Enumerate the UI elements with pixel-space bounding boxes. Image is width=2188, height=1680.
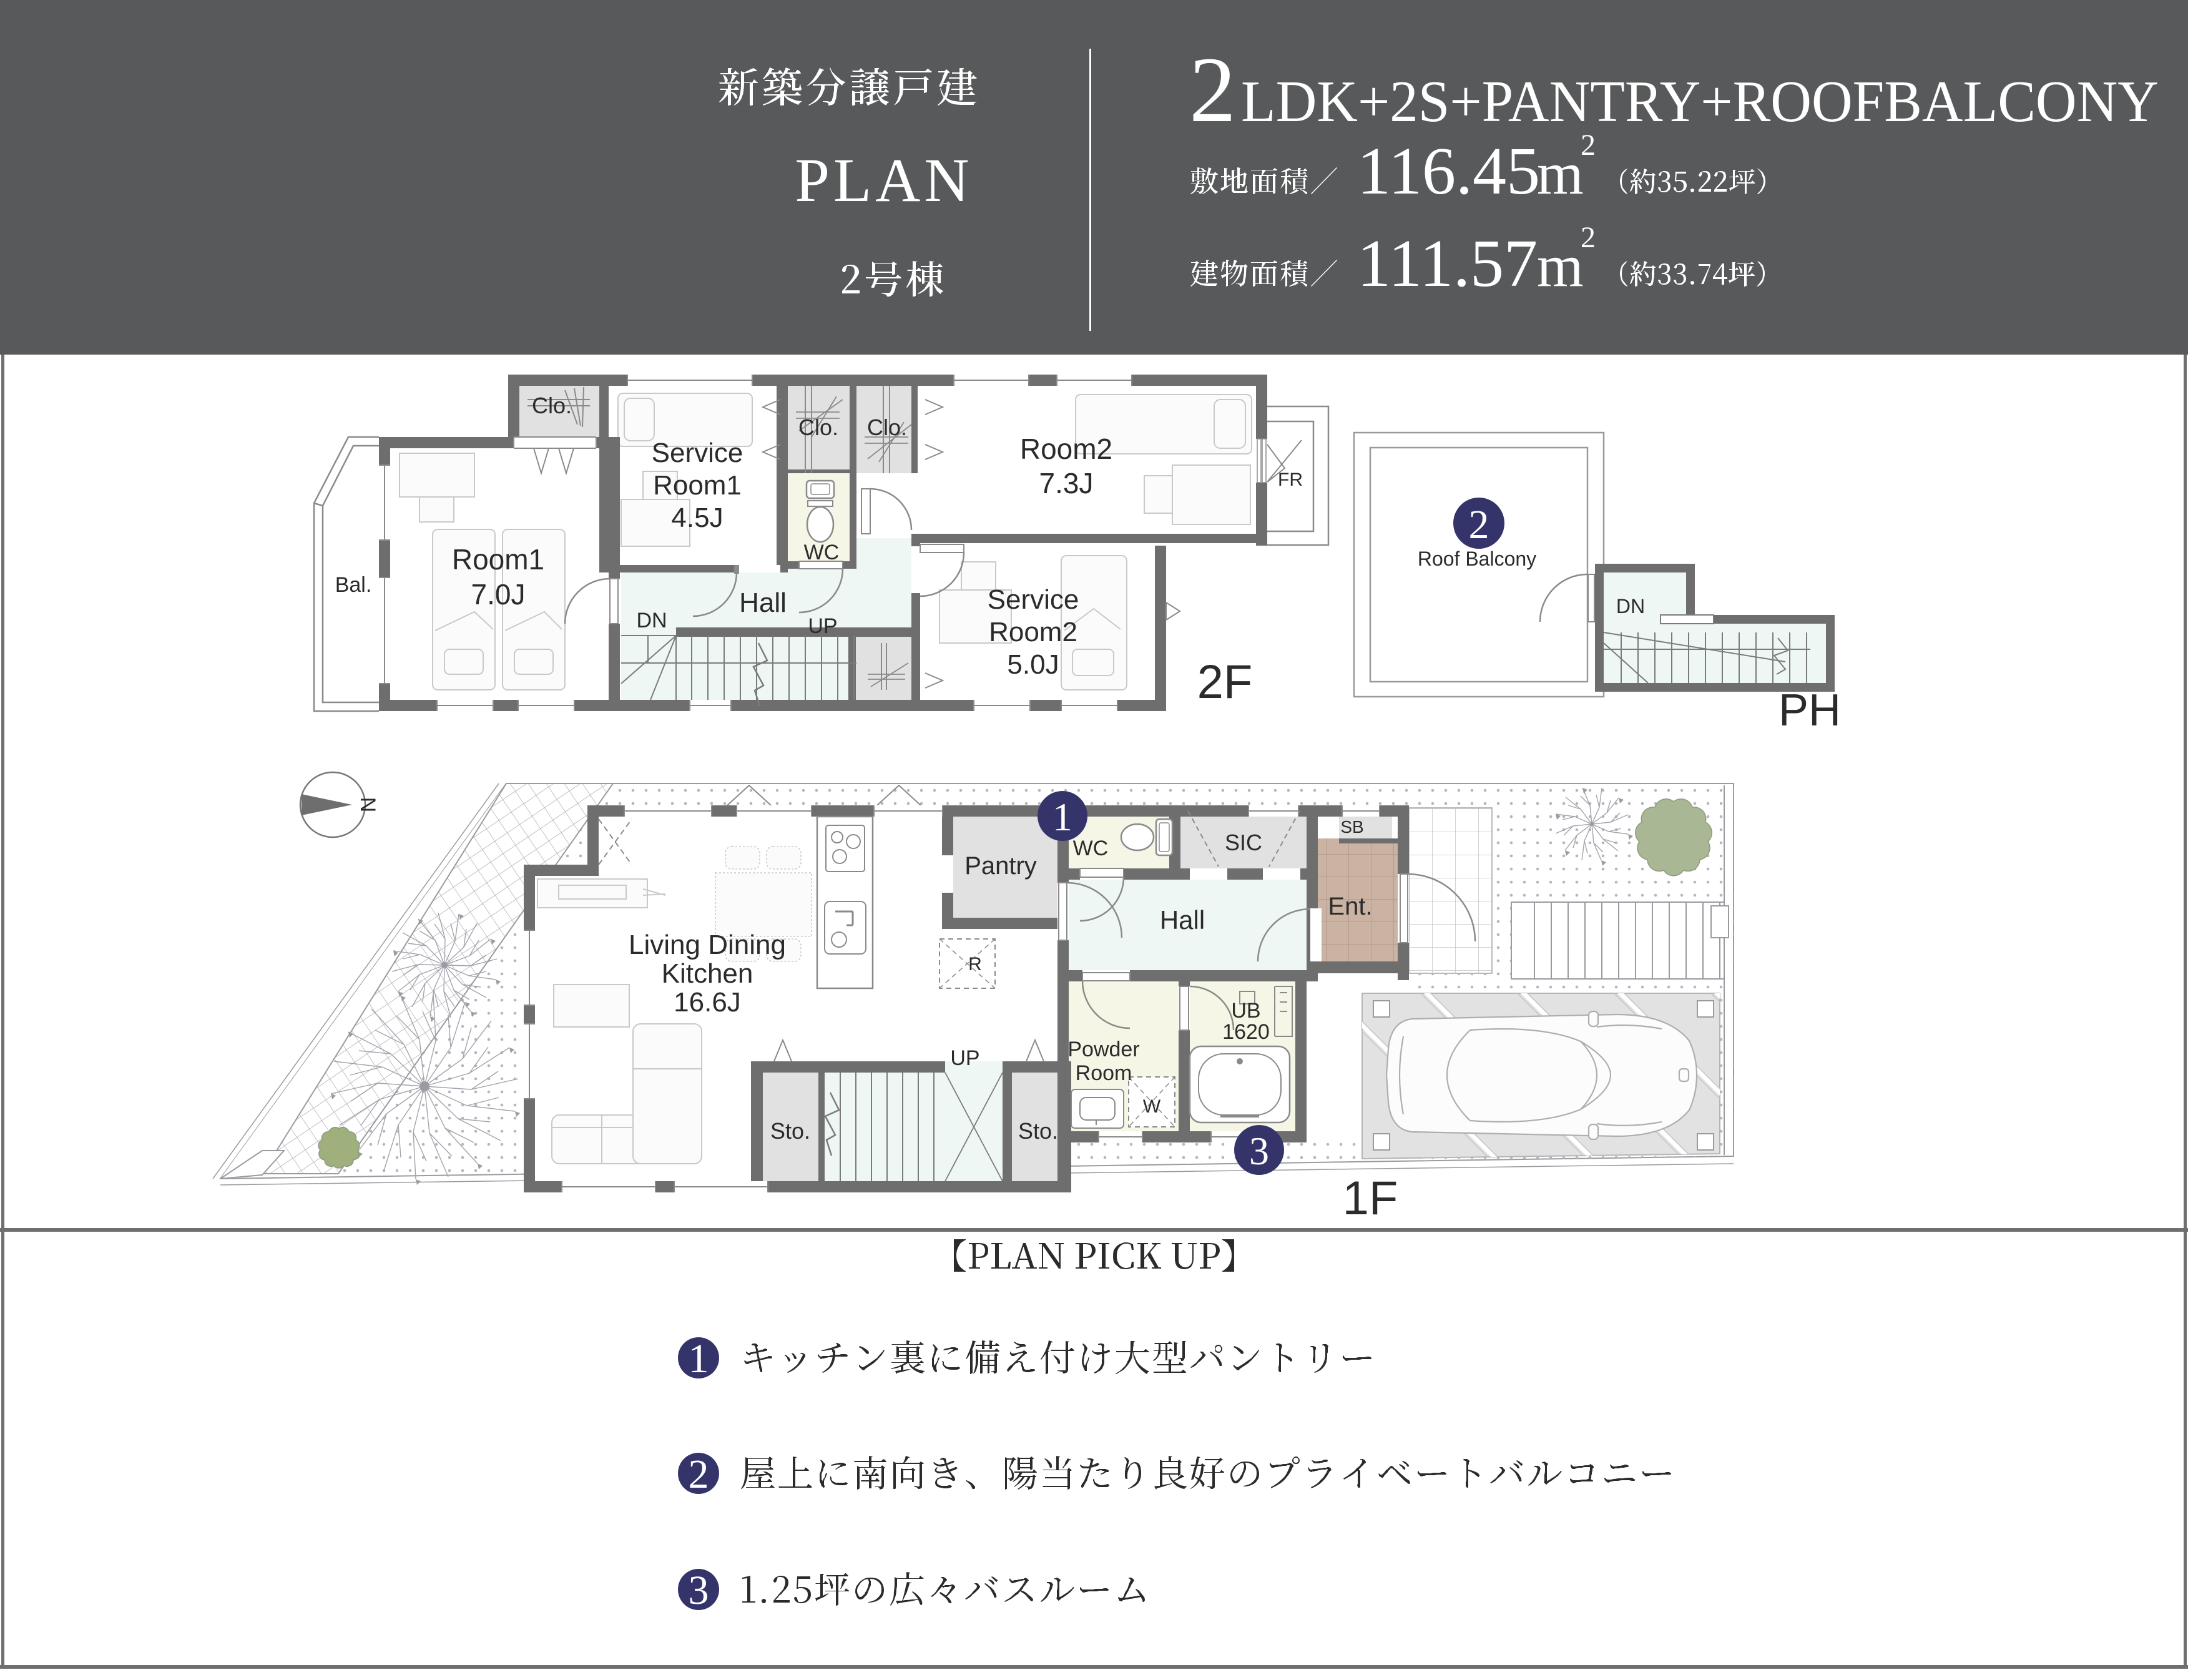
svg-text:Clo.: Clo. xyxy=(867,415,907,440)
svg-text:SB: SB xyxy=(1340,817,1363,837)
svg-text:Sto.: Sto. xyxy=(770,1118,810,1144)
svg-text:2: 2 xyxy=(1581,221,1596,254)
svg-text:m: m xyxy=(1537,232,1584,299)
svg-text:7.3J: 7.3J xyxy=(1039,467,1094,499)
svg-text:UP: UP xyxy=(950,1046,979,1070)
svg-text:Room: Room xyxy=(1076,1061,1132,1085)
svg-text:4.5J: 4.5J xyxy=(671,503,723,533)
svg-text:Sto.: Sto. xyxy=(1018,1118,1058,1144)
svg-text:Kitchen: Kitchen xyxy=(662,958,753,989)
svg-text:R: R xyxy=(968,954,982,975)
svg-text:2: 2 xyxy=(1581,129,1596,162)
svg-text:N: N xyxy=(356,797,380,813)
svg-text:111.57: 111.57 xyxy=(1357,227,1538,301)
svg-text:Room2: Room2 xyxy=(989,617,1077,647)
svg-text:m: m xyxy=(1537,140,1584,207)
svg-text:16.6J: 16.6J xyxy=(674,987,741,1018)
svg-text:Pantry: Pantry xyxy=(964,852,1037,880)
svg-text:Room1: Room1 xyxy=(653,470,742,501)
svg-text:PH: PH xyxy=(1778,685,1841,735)
svg-text:Clo.: Clo. xyxy=(532,393,572,418)
svg-text:7.0J: 7.0J xyxy=(471,578,526,611)
svg-text:2F: 2F xyxy=(1197,656,1253,709)
svg-text:FR: FR xyxy=(1278,469,1303,490)
svg-text:UB: UB xyxy=(1231,999,1260,1023)
svg-text:1F: 1F xyxy=(1343,1172,1398,1225)
svg-text:3: 3 xyxy=(1249,1129,1269,1173)
svg-text:2: 2 xyxy=(1469,502,1489,548)
svg-text:1: 1 xyxy=(1052,795,1072,839)
svg-text:1: 1 xyxy=(689,1336,709,1382)
svg-text:2: 2 xyxy=(689,1452,709,1497)
svg-text:WC: WC xyxy=(804,541,840,564)
svg-text:UP: UP xyxy=(808,614,837,638)
svg-text:SIC: SIC xyxy=(1225,830,1262,855)
svg-text:Service: Service xyxy=(988,584,1079,615)
svg-text:Room1: Room1 xyxy=(452,543,544,576)
svg-text:Living Dining: Living Dining xyxy=(629,930,786,960)
svg-text:DN: DN xyxy=(636,609,667,632)
svg-text:DN: DN xyxy=(1616,595,1645,617)
svg-text:Room2: Room2 xyxy=(1020,433,1112,465)
svg-text:Powder: Powder xyxy=(1067,1038,1139,1061)
svg-text:Clo.: Clo. xyxy=(798,415,838,440)
svg-text:Roof Balcony: Roof Balcony xyxy=(1418,548,1536,570)
svg-text:Ent.: Ent. xyxy=(1328,893,1372,920)
svg-text:W: W xyxy=(1143,1096,1161,1117)
svg-text:1620: 1620 xyxy=(1222,1020,1270,1044)
svg-text:5.0J: 5.0J xyxy=(1007,649,1059,680)
svg-text:Hall: Hall xyxy=(739,587,787,618)
svg-text:3: 3 xyxy=(689,1568,709,1613)
svg-text:WC: WC xyxy=(1073,837,1109,860)
svg-text:PLAN: PLAN xyxy=(795,145,973,215)
svg-text:Bal.: Bal. xyxy=(335,573,372,597)
svg-text:116.45: 116.45 xyxy=(1357,134,1540,209)
svg-text:2: 2 xyxy=(1189,38,1236,142)
svg-text:Service: Service xyxy=(652,438,743,468)
svg-text:Hall: Hall xyxy=(1160,905,1205,935)
svg-text:LDK+2S+PANTRY+ROOFBALCONY: LDK+2S+PANTRY+ROOFBALCONY xyxy=(1241,69,2159,134)
